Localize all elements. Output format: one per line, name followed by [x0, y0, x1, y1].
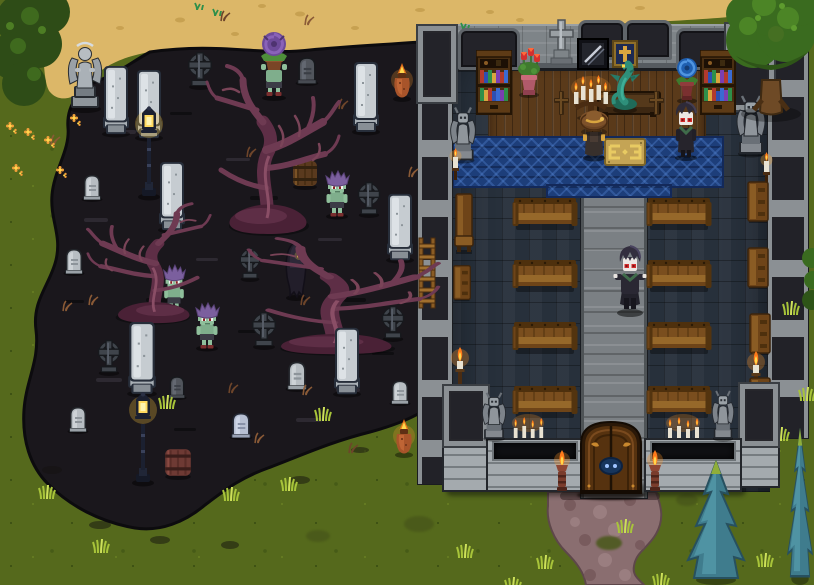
flower-pot-red — [514, 46, 544, 98]
vampire-npc[interactable] — [670, 100, 702, 162]
pew — [646, 258, 712, 296]
twig — [226, 382, 240, 394]
lantern-jar — [390, 62, 414, 102]
flower-orange — [6, 122, 18, 134]
corner-wall-left — [442, 442, 490, 492]
flower-orange — [24, 128, 36, 140]
church-door[interactable] — [577, 414, 645, 494]
tomb-gray — [62, 244, 86, 276]
wall-table — [746, 246, 770, 290]
flower-orange — [12, 164, 24, 176]
pine — [684, 460, 748, 585]
grass-tuft — [158, 394, 176, 410]
twig — [406, 166, 420, 178]
pew — [512, 258, 578, 296]
monument-grave — [100, 64, 132, 138]
front-tower — [738, 382, 780, 448]
bush — [0, 0, 74, 108]
grass-tuft — [38, 484, 56, 500]
wall-table — [746, 180, 770, 224]
grass-tuft — [92, 538, 110, 554]
wall-bench — [452, 264, 472, 302]
twig — [218, 10, 232, 22]
bookshelf — [476, 50, 512, 116]
tomb-gray — [66, 402, 90, 434]
twig — [346, 442, 360, 454]
grass-tuft — [798, 386, 814, 402]
wall-torch — [552, 450, 572, 494]
tall-chair — [452, 192, 476, 256]
monument-grave — [350, 60, 382, 136]
cross-celtic — [356, 180, 382, 218]
grass-tuft — [756, 552, 774, 568]
flower-orange — [70, 114, 82, 126]
lantern-jar — [392, 418, 416, 458]
tomb-gray — [388, 376, 412, 406]
foliage-edge — [802, 246, 814, 310]
monument-grave — [331, 326, 363, 398]
grass-tuft — [616, 518, 634, 534]
dirt-spot — [404, 516, 434, 532]
grass-tuft — [314, 406, 332, 422]
tomb-blue — [228, 408, 254, 440]
grass-tuft — [280, 476, 298, 492]
priest-npc[interactable] — [578, 102, 610, 162]
zombie[interactable] — [192, 302, 222, 352]
twig — [300, 384, 314, 396]
wall-candle — [449, 146, 462, 182]
twig — [302, 14, 316, 26]
tree-green — [724, 0, 814, 124]
flower-orange — [44, 136, 56, 148]
dirt-spot — [596, 536, 622, 550]
stone-cross — [546, 18, 576, 66]
grass-tuft — [652, 572, 670, 585]
streak — [170, 112, 192, 115]
corner-tower — [416, 24, 458, 104]
dirt-spot — [306, 530, 330, 542]
cross-celtic — [96, 338, 122, 376]
picture-sword — [577, 38, 609, 70]
grass-tuft — [536, 554, 554, 570]
twig — [60, 300, 74, 312]
grass-tuft — [222, 486, 240, 502]
lamp-post — [128, 390, 158, 488]
dead-tree — [203, 58, 341, 238]
pew — [646, 320, 712, 358]
monument-grave — [125, 320, 159, 398]
wood-cross — [646, 88, 666, 118]
gargoyle-front-right — [710, 386, 736, 442]
pew — [512, 196, 578, 234]
streak — [174, 428, 196, 431]
flower-orange — [56, 166, 68, 178]
grass-tuft — [456, 543, 474, 559]
gold-rug — [604, 138, 646, 166]
pew — [512, 320, 578, 358]
grass-tuft — [504, 576, 522, 585]
game-world[interactable] — [0, 0, 814, 585]
gargoyle-front-left — [480, 388, 508, 442]
streak — [96, 378, 122, 382]
barrel-red — [162, 446, 194, 480]
candle-row — [664, 408, 702, 442]
sprout — [194, 2, 204, 10]
wall-torch — [645, 450, 665, 494]
pine — [786, 428, 814, 585]
flower-pot-blue — [672, 56, 702, 104]
twig — [252, 432, 266, 444]
pew — [646, 196, 712, 234]
candle-row — [510, 408, 546, 442]
grass-tuft — [782, 300, 800, 316]
player-character[interactable] — [610, 242, 650, 318]
